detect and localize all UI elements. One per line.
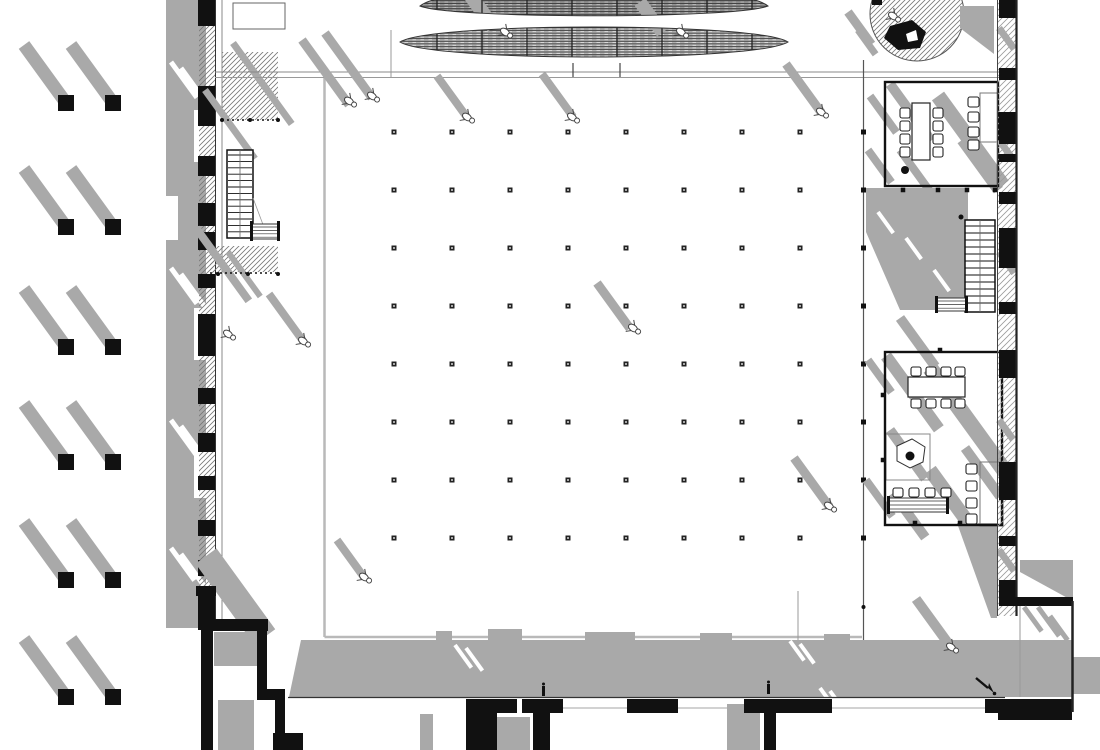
- bollard-shadow: [71, 404, 113, 462]
- plaza-column-dot-center: [683, 537, 685, 539]
- tree-branch: [872, 0, 882, 5]
- south-wall-segment: [466, 699, 517, 713]
- door-marker-dot: [542, 683, 545, 686]
- floor-plan-drawing: [0, 0, 1100, 750]
- bollard: [58, 95, 74, 111]
- chair: [893, 488, 903, 497]
- glass-line-mullion: [861, 246, 866, 251]
- east-wall-pier: [999, 0, 1016, 18]
- chair: [966, 464, 977, 474]
- east-wall-pier: [999, 350, 1016, 378]
- bollard-shadow: [24, 169, 66, 227]
- bollard: [105, 572, 121, 588]
- plaza-column-dot-center: [741, 189, 743, 191]
- pier-shadow: [497, 717, 530, 750]
- bollard-shadow: [24, 522, 66, 580]
- plaza-column-dot-center: [509, 247, 511, 249]
- east-wall-pier: [999, 228, 1016, 268]
- bench-post: [965, 296, 968, 313]
- plaza-column-dot-center: [509, 479, 511, 481]
- person-shadow: [337, 540, 364, 577]
- west-wall-pier: [198, 314, 215, 356]
- plaza-column-dot-center: [799, 363, 801, 365]
- chair: [900, 121, 910, 131]
- plaza-column-dot-center: [509, 363, 511, 365]
- chair: [968, 97, 979, 107]
- southwest-wall: [273, 733, 303, 750]
- plaza-column-dot-center: [741, 363, 743, 365]
- plaza-column-dot-center: [393, 247, 395, 249]
- chair: [966, 498, 977, 508]
- shadow-bump: [488, 629, 522, 641]
- northwest-structure: [233, 3, 285, 29]
- plaza-column-dot-center: [393, 305, 395, 307]
- shadow-streak: [868, 150, 891, 182]
- west-wall-pier: [198, 476, 215, 490]
- plaza-column-dot-center: [567, 421, 569, 423]
- bollard: [105, 454, 121, 470]
- bollard-shadow: [71, 169, 113, 227]
- plaza-column-dot-center: [625, 305, 627, 307]
- plaza-column-dot-center: [567, 479, 569, 481]
- bollard-shadow: [71, 289, 113, 347]
- bollard: [58, 339, 74, 355]
- chair: [941, 399, 951, 408]
- shadow-bump: [824, 634, 850, 641]
- person-shadow: [269, 294, 303, 341]
- chair: [955, 399, 965, 408]
- plaza-column-dot-center: [509, 305, 511, 307]
- plaza-column-dot-center: [451, 479, 453, 481]
- corner-wall: [1012, 597, 1073, 606]
- plaza-column-dot-center: [451, 363, 453, 365]
- chair: [933, 134, 943, 144]
- glass-line-mullion: [861, 130, 866, 135]
- door-marker: [542, 686, 545, 696]
- mullion-dot: [913, 521, 918, 526]
- plaza-column-dot-center: [741, 537, 743, 539]
- plaza-column-dot-center: [683, 305, 685, 307]
- edge-dot: [276, 118, 280, 122]
- door-marker-dot: [767, 681, 770, 684]
- plaza-column-dot-center: [451, 247, 453, 249]
- chair: [941, 488, 951, 497]
- plaza-column-dot-center: [799, 189, 801, 191]
- plaza-column-dot-center: [625, 421, 627, 423]
- plaza-column-dot-center: [625, 363, 627, 365]
- mullion-dot: [958, 521, 963, 526]
- chair: [933, 147, 943, 157]
- chair: [911, 367, 921, 376]
- chair: [966, 514, 977, 524]
- corridor-shadow: [866, 188, 968, 310]
- south-wall-pier: [764, 713, 776, 750]
- plaza-column-dot-center: [393, 131, 395, 133]
- southeast-corner-wall: [998, 699, 1072, 720]
- east-wall-pier: [999, 68, 1016, 80]
- chair: [925, 488, 935, 497]
- southwest-wall: [257, 689, 285, 700]
- plaza-column-dot-center: [567, 247, 569, 249]
- shadow-bump: [585, 632, 635, 641]
- south-wall-pier: [533, 713, 550, 750]
- glass-line-mullion: [861, 304, 866, 309]
- south-wall-pier: [466, 713, 497, 750]
- bollard-shadow: [24, 639, 66, 697]
- corner-shadow: [218, 700, 254, 750]
- glass-line-mullion: [861, 188, 866, 193]
- plaza-column-dot-center: [625, 247, 627, 249]
- plaza-column-dot-center: [683, 189, 685, 191]
- person-shadow: [786, 64, 821, 113]
- bollard-shadow: [24, 404, 66, 462]
- plaza-column-dot-center: [567, 363, 569, 365]
- plaza-column-dot-center: [625, 131, 627, 133]
- shadow-streak: [870, 96, 896, 132]
- plaza-column-dot-center: [683, 363, 685, 365]
- plaza-column-dot-center: [625, 537, 627, 539]
- person-shadow: [542, 74, 573, 117]
- plaza-column-dot-center: [393, 189, 395, 191]
- chair: [911, 399, 921, 408]
- tree-shadow: [960, 6, 994, 54]
- bollard-shadow: [24, 45, 66, 103]
- mullion-dot: [881, 393, 886, 398]
- plaza-column-dot-center: [799, 421, 801, 423]
- south-wall-segment: [522, 699, 563, 713]
- plaza-column-dot-center: [451, 537, 453, 539]
- bench-post: [250, 221, 253, 241]
- southwest-wall: [275, 700, 285, 736]
- chair: [968, 112, 979, 122]
- plaza-column-dot-center: [567, 537, 569, 539]
- chair: [926, 367, 936, 376]
- shadow-bump: [700, 633, 732, 641]
- bench-post: [887, 496, 890, 514]
- plaza-column-dot-center: [741, 305, 743, 307]
- plaza-column-dot-center: [683, 247, 685, 249]
- person-figure: [220, 325, 239, 344]
- east-wall-pier: [999, 112, 1016, 144]
- chair: [900, 147, 910, 157]
- bollard: [105, 219, 121, 235]
- meeting-table: [912, 103, 930, 160]
- bollard: [105, 689, 121, 705]
- meeting-table: [908, 377, 965, 397]
- west-wall-pier: [198, 388, 215, 404]
- plaza-column-dot-center: [451, 189, 453, 191]
- plaza-column-dot-center: [741, 479, 743, 481]
- plaza-column-dot-center: [799, 131, 801, 133]
- plaza-column-dot-center: [799, 247, 801, 249]
- facade-notch: [166, 196, 178, 240]
- plaza-column-dot-center: [567, 131, 569, 133]
- east-wall-pier: [999, 302, 1016, 314]
- plaza-column-dot-center: [799, 305, 801, 307]
- mullion-dot-row: [901, 188, 906, 193]
- edge-dot: [248, 118, 252, 122]
- edge-dot: [246, 272, 250, 276]
- mullion-dot-row: [965, 188, 970, 193]
- bollard: [58, 689, 74, 705]
- corner-shadow: [1020, 560, 1073, 601]
- chair: [933, 108, 943, 118]
- bench-post: [946, 496, 949, 514]
- shadow-streak: [900, 318, 935, 367]
- bench-post: [277, 221, 280, 241]
- chair: [926, 399, 936, 408]
- plaza-column-dot-center: [509, 421, 511, 423]
- survey-marker-dot: [993, 692, 997, 696]
- bollard-shadow: [24, 289, 66, 347]
- bollard: [105, 339, 121, 355]
- plaza-column-dot-center: [567, 305, 569, 307]
- plaza-column-dot-center: [451, 421, 453, 423]
- bollard-shadow: [71, 639, 113, 697]
- mullion-dot: [862, 605, 866, 609]
- room-fixture: [980, 93, 998, 142]
- bollard: [105, 95, 121, 111]
- plaza-column-dot-center: [799, 479, 801, 481]
- chair: [968, 140, 979, 150]
- shadow-band-east: [1073, 657, 1100, 694]
- chair: [900, 134, 910, 144]
- plaza-column-dot-center: [509, 189, 511, 191]
- east-wall-pier: [999, 154, 1016, 162]
- west-wall-pier: [198, 433, 215, 452]
- door-marker: [767, 684, 770, 694]
- plaza-column-dot-center: [393, 479, 395, 481]
- plaza-column-dot-center: [625, 189, 627, 191]
- plaza-column-dot-center: [683, 421, 685, 423]
- plaza-column-dot-center: [509, 131, 511, 133]
- plaza-column-dot-center: [451, 131, 453, 133]
- glass-line-mullion: [861, 420, 866, 425]
- edge-dot: [216, 272, 220, 276]
- chair: [966, 481, 977, 491]
- south-wall-segment: [744, 699, 832, 713]
- chair: [955, 367, 965, 376]
- bollard: [58, 219, 74, 235]
- east-wall-pier: [999, 192, 1016, 204]
- edge-dot: [220, 118, 224, 122]
- plaza-column-dot-center: [683, 479, 685, 481]
- chair: [933, 121, 943, 131]
- person-shadow: [916, 599, 950, 646]
- bench: [252, 224, 278, 239]
- southwest-wall: [196, 586, 216, 596]
- plant-dot: [901, 166, 909, 174]
- mullion-dot-row: [993, 188, 998, 193]
- mullion-dot-row: [936, 188, 941, 193]
- mullion-dot: [881, 458, 886, 463]
- east-wall-pier: [999, 462, 1016, 500]
- plaza-column-dot-center: [567, 189, 569, 191]
- plaza-column-dot-center: [799, 537, 801, 539]
- west-wall-pier: [198, 156, 215, 176]
- plaza-column-dot-center: [741, 247, 743, 249]
- southwest-wall: [201, 619, 268, 631]
- chair: [909, 488, 919, 497]
- west-wall-pier: [198, 0, 215, 26]
- stair-dot: [959, 215, 964, 220]
- plaza-column-dot-center: [393, 363, 395, 365]
- plaza-column-dot-center: [393, 421, 395, 423]
- plaza-column-dot-center: [625, 479, 627, 481]
- west-wall-pier: [198, 274, 215, 288]
- person-shadow: [437, 76, 467, 117]
- plaza-column-dot-center: [393, 537, 395, 539]
- edge-dot: [276, 272, 280, 276]
- pier-shadow: [420, 714, 433, 750]
- southwest-wall: [257, 631, 267, 693]
- bollard-shadow: [71, 45, 113, 103]
- south-wall-segment: [627, 699, 678, 713]
- chair: [900, 108, 910, 118]
- west-wall-pier: [198, 203, 215, 226]
- mullion-dot: [938, 348, 943, 353]
- east-wall-pier: [999, 536, 1016, 546]
- plaza-column-dot-center: [683, 131, 685, 133]
- bollard: [58, 572, 74, 588]
- bench-post: [935, 296, 938, 313]
- desk-dot: [906, 452, 915, 461]
- plaza-column-dot-center: [451, 305, 453, 307]
- chair: [941, 367, 951, 376]
- west-wall-pier: [198, 520, 215, 536]
- chair: [968, 127, 979, 137]
- floor-plan: [0, 0, 1100, 750]
- bollard-shadow: [71, 522, 113, 580]
- bollard: [58, 454, 74, 470]
- shadow-bump: [436, 631, 452, 641]
- plaza-column-dot-center: [741, 131, 743, 133]
- plaza-column-dot-center: [509, 537, 511, 539]
- plaza-column-dot-center: [741, 421, 743, 423]
- glass-line-mullion: [861, 536, 866, 541]
